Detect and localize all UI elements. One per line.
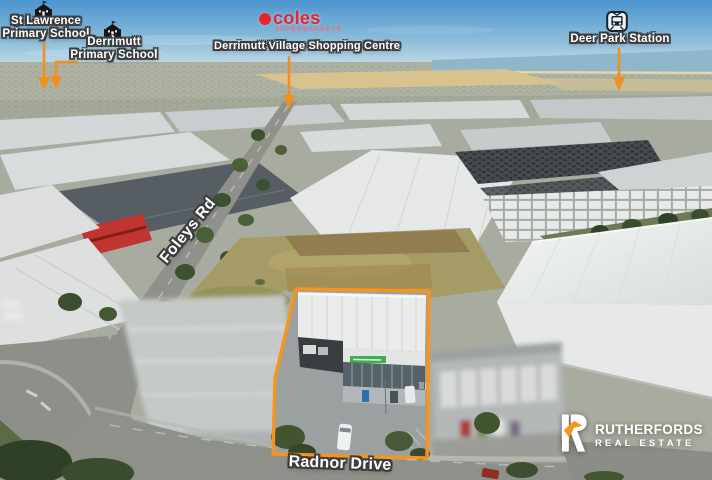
coles-dot-icon [259,13,271,25]
label-line: St Lawrence [0,15,98,28]
label-deer-park-station: Deer Park Station [552,33,688,46]
label-shopping-centre: Derrimutt Village Shopping Centre [214,40,398,52]
label-line: Derrimutt Village Shopping Centre [214,40,398,52]
label-line: Derrimutt [62,36,166,49]
aerial-listing-photo: St Lawrence Primary School Derrimutt Pri… [0,0,712,480]
agency-subtitle: REAL ESTATE [595,439,703,449]
subject-property [271,289,430,460]
neighbor-building-right-blurred [430,342,568,476]
agency-logo: RUTHERFORDS REAL ESTATE [560,412,703,459]
label-derrimutt-primary-school: Derrimutt Primary School [62,36,166,61]
rutherfords-house-icon [560,412,588,459]
coles-tagline: SUPERMARKETS [275,26,342,33]
label-line: Primary School [62,49,166,62]
agency-name: RUTHERFORDS [595,423,703,437]
label-line: Deer Park Station [552,33,688,46]
aerial-photo-scene [0,0,712,480]
